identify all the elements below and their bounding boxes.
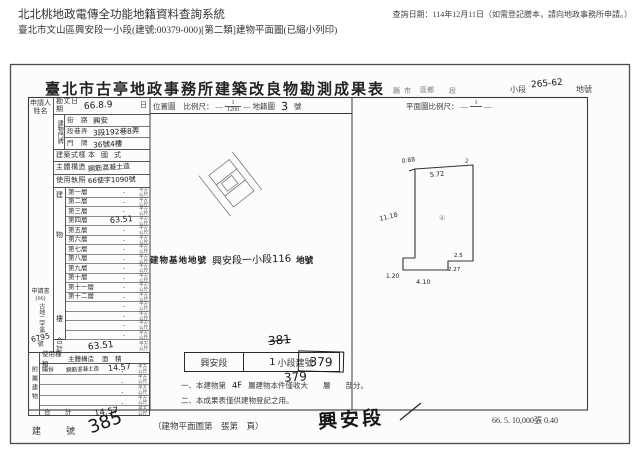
address-row-value: 3段192巷8弄 [93,126,150,137]
dim-top-step: 0.88 [401,156,415,165]
document-subtitle: 臺北市文山區興安段一小段(建號:00379-000)[第二類]建物平面圖(已縮小… [18,22,337,36]
floor-area-cell: ． [102,283,139,292]
land-registry-viewer: { "header": { "system_title": "北北桃地政電傳全功… [0,0,640,453]
plan-dash-right: — [484,102,492,111]
dim-left: 11.18 [379,211,399,223]
floor-area-cell: ． [102,236,139,245]
note-1-post: 層建物本件僅收大 層 部分。 [248,381,368,390]
floor-row: 第四層 ． 63.51 平方公尺 [66,217,150,227]
floor-label: 第四層 [66,217,102,224]
decimal-dot: ． [122,199,128,206]
subsection-label: 小段 [510,84,526,95]
decimal-dot: ． [122,303,128,310]
note-2: 二、本成果表僅供建物登記之用。 [181,395,294,406]
applicant-label: 申請人姓名 [30,100,52,115]
attached-building-table: 附屬建物 使用種類 主體構造 面 積 陽台 鋼筋混凝土造 ． 14.57 平方公… [28,352,150,416]
style-label: 建築式樣 [54,152,88,160]
attached-row: ． 平方公尺 [40,385,149,396]
section-name-handwritten: 興安段 [317,403,385,435]
attached-area-unit: 平方公尺 [138,395,149,405]
query-date: 查詢日期：114年12月11日（如需登記謄本，請向地政事務所申請。） [393,9,632,20]
district-label: 區鄉 [420,85,434,95]
floor-side-label: 建 物 樓 [54,188,66,339]
floor-area-cell: ． [102,188,139,197]
attached-structure [66,399,100,401]
decimal-dot: ． [122,256,128,263]
attached-use [40,399,66,401]
attached-structure [66,389,100,391]
floor-row: 第五層 ． 平方公尺 [66,226,150,236]
structure-value: 鋼筋混凝土造 [88,162,150,174]
floor-area-cell: ． [102,302,139,311]
building-no-label: 建 號 [32,424,83,437]
plan-scale-denominator [470,106,482,113]
dash-right: — [243,102,251,111]
attached-structure: 鋼筋混凝土造 [66,364,100,374]
floor-label: 第五層 [66,227,102,234]
document-title: 臺北市古亭地政事務所建築改良物勘測成果表 [45,78,385,99]
decimal-dot: ． [122,246,128,253]
site-lot-value: 興安段一小段116 [212,250,292,268]
cadastral-sheet-suffix: 號 [294,101,302,112]
attached-structure [66,378,100,380]
floor-label: 第八層 [66,255,102,262]
attached-row: 陽台 鋼筋混凝土造 ． 14.57 平方公尺 [40,364,149,375]
side-char-3: 樓 [56,316,63,324]
survey-date-unit: 日 [140,102,150,110]
map-scale-fraction: 1 1200 [225,100,241,113]
floor-label: 第九層 [66,265,102,272]
dim-step-height: 2.27 [448,267,461,273]
dim-tab: 1.20 [386,273,400,280]
floor-area-cell: ． [102,274,139,283]
floor-label: 第二層 [66,198,102,205]
style-row: 建築式樣 本國式 [54,150,150,162]
license-label: 使用執照 [54,177,88,185]
address-row-label: 門 牌 [65,140,93,147]
cadastral-sheet-no: 3 [281,100,289,113]
floor-plan-header: 平面圖比例尺： — 1 — [406,100,492,113]
floor-mark: ④ [439,214,445,222]
floor-row: 第三層 ． 平方公尺 [66,207,150,217]
decimal-dot: ． [122,284,128,291]
style-value: 本國式 [88,152,150,160]
address-row: 街 路 興安 [65,115,150,127]
address-block: 建物門牌 街 路 興安 段巷弄 3段192巷8弄 門 牌 36號4樓 [54,115,150,150]
total-row: 合 計 63.51 平方公尺 [54,340,150,352]
attached-total-label: 合 計 [40,406,94,416]
address-label: 建物門牌 [54,115,65,149]
side-char-1: 建 [56,192,63,200]
city-label: 市 [404,86,411,96]
attached-row: ． 平方公尺 [40,375,149,386]
site-location-sketch [196,148,270,216]
decimal-dot: ． [121,376,127,385]
address-row-label: 街 路 [65,117,93,124]
section-label: 段 [449,86,456,96]
floor-row: ． 平方公尺 [66,312,150,322]
side-char-2: 物 [56,232,63,240]
floor-row: 第十一層 ． 平方公尺 [66,283,150,293]
floor-label: 第十二層 [66,293,102,300]
print-code: 66. 5. 10,000張 0.40 [492,415,558,426]
site-lot-suffix: 地號 [296,254,313,266]
floor-row: 第二層 ． 平方公尺 [66,198,150,208]
floor-label: 第三層 [66,208,102,215]
attached-structure-header: 主體構造 [66,353,100,363]
floor-row: 第六層 ． 平方公尺 [66,236,150,246]
registration-subsection-hw: 1 [269,357,275,368]
note-1: 一、本建物第 4F 層建物本件僅收大 層 部分。 [181,380,368,391]
attached-total-unit: 平方公尺 [138,406,149,416]
survey-date-value: 66.8.9 [84,99,141,113]
location-map-label: 位置圖 [153,101,176,112]
dash-left: — [216,102,224,111]
floor-row: 第九層 ． 平方公尺 [66,264,150,274]
attached-area-unit: 平方公尺 [138,374,149,384]
plan-sheet-caption: （建物平面圖第 張第 頁） [153,420,264,432]
note-1-pre: 一、本建物第 [181,381,226,390]
dim-bottom: 4.10 [416,278,430,286]
floor-area-value: 63.51 [110,215,134,226]
floor-label: 第七層 [66,246,102,253]
floor-label: 第十一層 [66,284,102,291]
attached-area-value: 14.57 [108,362,132,373]
floor-row: ． 平方公尺 [66,321,150,331]
attached-use [40,389,66,391]
floor-areas-block: 建 物 樓 第一層 ． 平方公尺 第二層 ． [54,188,150,340]
decimal-dot: ． [122,294,128,301]
decimal-dot: ． [122,322,128,329]
decimal-dot: ． [122,189,128,196]
attached-use: 陽台 [40,363,67,374]
structure-row: 主體構造 鋼筋混凝土造 [54,162,150,175]
attached-area-cell: ． [100,375,138,385]
floor-area-cell: ． [102,255,139,264]
decimal-dot: ． [122,332,128,339]
floor-area-cell: ． [102,226,139,235]
decimal-dot: ． [122,237,128,244]
floor-area-cell: ． [102,264,139,273]
attached-header-row: 使用種類 主體構造 面 積 [40,353,149,364]
scale-label: 比例尺： [184,101,214,112]
applicant-column: 申請人姓名 申請書 (66) 古地二字第 6795 號 [28,97,54,352]
dim-step-width: 2.5 [454,253,463,259]
floor-row: 第八層 ． 平方公尺 [66,255,150,265]
floor-label: 第十層 [66,274,102,281]
address-row: 段巷弄 3段192巷8弄 [65,127,150,139]
address-row: 門 牌 36號4樓 [65,138,150,149]
plan-scale-fraction: 1 [470,100,482,113]
attached-use [40,378,66,380]
site-lot-line: 建物基地地號 興安段一小段116 地號 [150,251,313,266]
total-unit: 平方公尺 [139,341,150,351]
dim-extra: 2 [465,158,469,165]
regno-crossed-out: 381 [267,332,291,348]
floor-area-cell: ． [102,321,139,330]
floor-row: 第七層 ． 平方公尺 [66,245,150,255]
dim-top: 5.72 [429,170,444,179]
floor-row: 第十二層 ． 平方公尺 [66,293,150,303]
address-row-label: 段巷弄 [65,128,93,135]
regno-boxed: 379 [309,354,332,369]
decimal-dot: ． [122,227,128,234]
floor-row: ． 平方公尺 [66,302,150,312]
survey-form-table: 申請人姓名 申請書 (66) 古地二字第 6795 號 勘丈日期 66.8.9 … [28,97,150,352]
address-rows: 街 路 興安 段巷弄 3段192巷8弄 門 牌 36號4樓 [65,115,150,149]
floor-area-cell: ． [102,312,139,321]
system-title: 北北桃地政電傳全功能地籍資料查詢系統 [18,6,225,22]
floor-area-cell: ． [102,293,139,302]
decimal-dot: ． [121,386,127,395]
county-label: 縣 [393,86,400,96]
floor-area-cell: ． [102,331,139,340]
note-1-handwritten: 4F [231,380,242,391]
floor-label: 第六層 [66,236,102,243]
floor-area-cell: ． [102,198,139,207]
floor-area-cell: ． [102,245,139,254]
survey-date-label: 勘丈日期 [54,98,84,113]
site-lot-label: 建物基地地號 [150,254,207,266]
scale-denominator: 1200 [225,106,241,113]
floor-row: 第十層 ． 平方公尺 [66,274,150,284]
floor-area-cell: ． 63.51 [102,217,139,226]
floor-row: 第一層 ． 平方公尺 [66,188,150,198]
structure-label: 主體構造 [54,164,88,172]
docref-year: (66) [36,296,46,303]
floor-rows: 第一層 ． 平方公尺 第二層 ． 平方公尺 [66,188,150,339]
cadastral-sheet-label: 地籍圖 [253,101,276,112]
attached-area-cell: ． 14.57 [100,364,138,374]
lot-label: 地號 [576,84,592,95]
attached-rows: 陽台 鋼筋混凝土造 ． 14.57 平方公尺 ． 平方公尺 [40,364,149,406]
plan-dash-left: — [461,102,469,111]
survey-date-row: 勘丈日期 66.8.9 日 [54,97,150,115]
address-row-value: 36號4樓 [93,138,150,149]
location-map-header: 位置圖 比例尺： — 1 1200 — 地籍圖 3 號 [153,100,302,113]
attached-area-unit: 平方公尺 [138,385,149,395]
decimal-dot: ． [122,265,128,272]
registration-section: 興安段 [185,353,244,371]
attached-side-label: 附屬建物 [29,353,40,415]
docref-prefix: 古地二字第 [37,303,44,333]
license-value: 66使字1090號 [88,176,150,186]
attached-area-unit: 平方公尺 [138,364,149,374]
plan-scale-label: 平面圖比例尺： [406,101,459,112]
floor-label: 第一層 [66,189,102,196]
license-row: 使用執照 66使字1090號 [54,175,150,188]
decimal-dot: ． [122,313,128,320]
floor-plan-drawing: 0.88 5.72 2 11.18 1.20 4.10 2.5 2.27 ④ [370,125,580,290]
floor-area-unit: 平方公尺 [139,330,150,340]
docref-book: 申請書 [31,289,49,296]
attached-area-cell: ． [100,385,138,395]
address-row-value: 興安 [93,115,150,126]
decimal-dot: ． [122,275,128,282]
